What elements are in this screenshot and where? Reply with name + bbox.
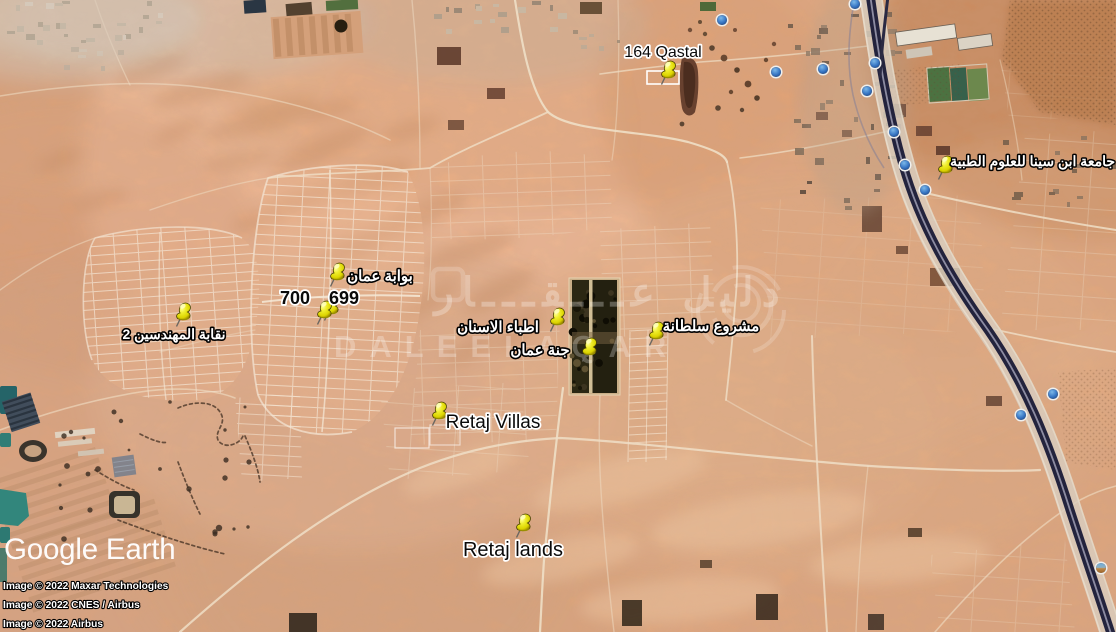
svg-text:نقابة المهندسين 2: نقابة المهندسين 2 bbox=[122, 326, 225, 343]
svg-text:جنة عمان: جنة عمان bbox=[510, 342, 569, 359]
svg-text:Retaj lands: Retaj lands bbox=[463, 539, 563, 561]
svg-text:699: 699 bbox=[329, 288, 359, 308]
svg-text:Image © 2022 CNES / Airbus: Image © 2022 CNES / Airbus bbox=[3, 600, 140, 611]
svg-text:Image © 2022 Airbus: Image © 2022 Airbus bbox=[3, 619, 103, 630]
svg-text:Google Earth: Google Earth bbox=[4, 533, 175, 566]
svg-text:مشروع سلطانة: مشروع سلطانة bbox=[663, 318, 760, 335]
svg-text:Retaj Villas: Retaj Villas bbox=[446, 412, 541, 433]
svg-text:Image © 2022 Maxar Technologie: Image © 2022 Maxar Technologies bbox=[3, 581, 169, 592]
svg-text:164 Qastal: 164 Qastal bbox=[624, 44, 701, 61]
svg-text:700: 700 bbox=[280, 288, 310, 308]
svg-text:اطباء الاسنان: اطباء الاسنان bbox=[457, 319, 539, 336]
svg-text:جامعة ابن سينا للعلوم الطبية: جامعة ابن سينا للعلوم الطبية bbox=[950, 153, 1115, 170]
svg-text:بوابة عمان: بوابة عمان bbox=[347, 268, 413, 285]
